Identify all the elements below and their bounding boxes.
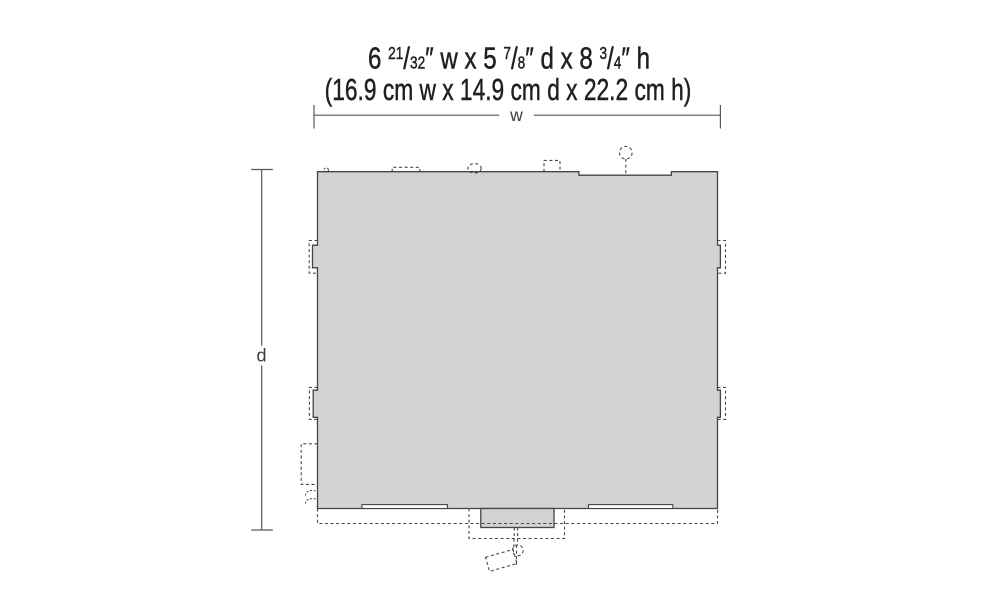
svg-text:d: d: [256, 346, 266, 366]
svg-text:w: w: [509, 105, 523, 125]
